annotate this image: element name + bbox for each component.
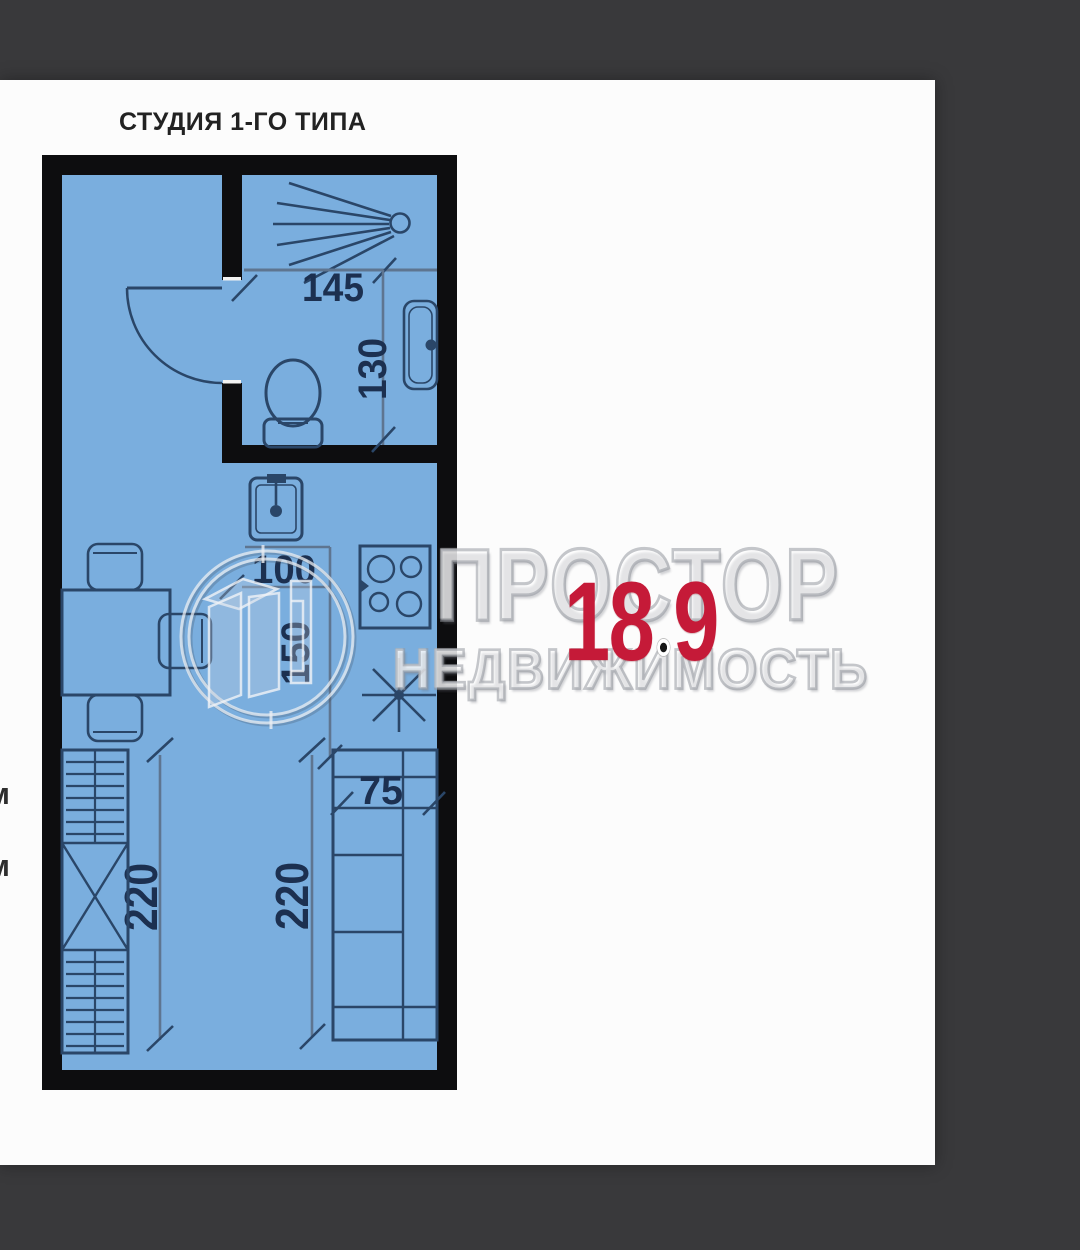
dim-label-100: 100 (252, 548, 316, 592)
dim-label-220-right: 220 (266, 862, 318, 930)
decimal-dot (657, 639, 670, 656)
floorplan: 145 130 (42, 155, 457, 1090)
dim-label-220-left: 220 (115, 863, 167, 931)
dim-label-145: 145 (302, 266, 364, 310)
dim-label-130: 130 (351, 338, 395, 400)
listing-page: СТУДИЯ 1-ГО ТИПА (0, 80, 935, 1165)
cropped-label-m-bottom: м (0, 850, 10, 881)
screen-background: СТУДИЯ 1-ГО ТИПА (0, 0, 1080, 1250)
plan-title: СТУДИЯ 1-ГО ТИПА (119, 110, 366, 135)
dim-label-150: 150 (274, 621, 318, 685)
area-value: 189 (564, 566, 718, 678)
light-star-icon (362, 658, 436, 732)
area-frac: 9 (673, 559, 718, 684)
cropped-label-m-top: м (0, 778, 10, 809)
area-int: 18 (564, 559, 653, 684)
dim-label-75: 75 (359, 769, 403, 813)
